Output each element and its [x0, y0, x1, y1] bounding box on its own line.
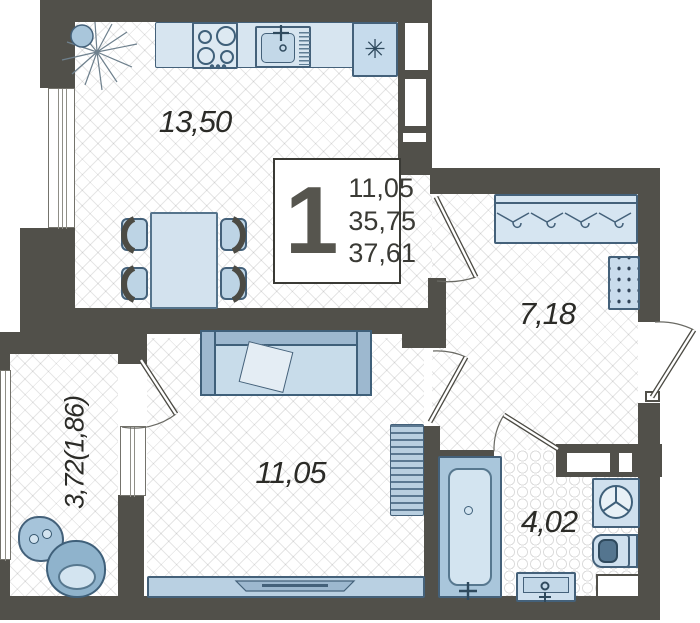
drainboard-icon [299, 32, 310, 65]
total-area-value: 37,61 [348, 237, 416, 270]
balcony-living-window [120, 426, 146, 496]
wardrobe [494, 194, 638, 244]
kitchen-window [48, 88, 75, 228]
window-glass-line [66, 89, 67, 229]
wall-living-left-block [118, 330, 147, 364]
wall-left-upper [40, 0, 75, 88]
shaft-niche-1 [403, 21, 430, 72]
window-glass-line [58, 89, 59, 229]
window-glass-line [130, 427, 131, 497]
shaft-niche-5 [617, 451, 634, 474]
sofa-icon [200, 330, 372, 398]
wall-balcony-living-lower [118, 495, 144, 598]
cup-icon [29, 534, 39, 544]
dining-chair [220, 218, 247, 251]
kitchen-area-label: 13,50 [130, 104, 260, 140]
wall-top [40, 0, 432, 22]
wall-door-jamb-stub [428, 278, 446, 348]
rooms-count: 1 [285, 180, 338, 262]
area-value: 35,75 [348, 205, 416, 238]
entrance-door-hinge-block [645, 391, 660, 402]
entrance-door [652, 322, 694, 397]
wardrobe-rail [496, 202, 636, 204]
dining-chair [121, 218, 148, 251]
wall-right-lower [638, 403, 660, 598]
balcony-glazing [0, 370, 11, 560]
hallway-area-label: 7,18 [502, 296, 592, 332]
bathroom-sink-icon [516, 572, 576, 602]
kitchen-sink-basin [261, 33, 295, 63]
dining-chair [220, 267, 247, 300]
shaft-niche-2 [403, 77, 428, 128]
sofa-armrest [356, 330, 372, 396]
living-area-value: 11,05 [348, 172, 416, 205]
dining-chair [121, 267, 148, 300]
apartment-floor-plan: ✳ [0, 0, 700, 623]
kitchen-sink-icon [255, 26, 311, 68]
cup-icon [42, 529, 52, 539]
window-glass-line [5, 371, 6, 561]
stove-icon [192, 22, 238, 69]
tv-console [147, 576, 425, 598]
fridge-glyph: ✳ [364, 34, 386, 65]
bathroom-sink-basin [523, 577, 569, 593]
washing-machine-icon [592, 478, 640, 528]
toilet-icon [592, 532, 640, 570]
wall-right-upper [638, 194, 660, 322]
window-glass-line [134, 427, 135, 497]
window-glass-line [62, 89, 63, 229]
bathtub-inner [448, 468, 492, 586]
living-radiator-icon [390, 424, 424, 516]
wall-hallway-top [430, 168, 660, 194]
hallway-radiator-icon [608, 256, 640, 310]
living-area-label: 11,05 [233, 455, 348, 491]
bathroom-area-label: 4,02 [504, 504, 594, 540]
fridge-icon: ✳ [352, 22, 398, 77]
unit-info-box: 1 11,05 35,75 37,61 [273, 158, 401, 284]
shaft-niche-4 [565, 451, 612, 474]
shaft-niche-6 [596, 574, 640, 598]
bathtub-icon [438, 456, 502, 598]
shaft-niche-3 [401, 131, 428, 144]
balcony-area-label: 3,72(1,86) [60, 338, 91, 568]
bathtub-drain [464, 506, 473, 515]
toilet-bowl [598, 539, 618, 563]
dining-table [150, 212, 218, 309]
balcony-chair-seat [58, 564, 96, 590]
